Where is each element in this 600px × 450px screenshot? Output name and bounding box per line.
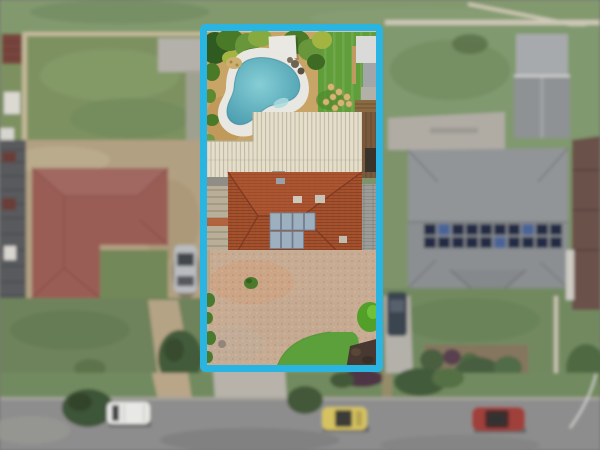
purple-shrub <box>443 349 461 365</box>
yellow-car <box>322 407 369 432</box>
roof-vent <box>315 195 325 203</box>
shed <box>516 34 568 78</box>
garden-shed <box>2 34 22 64</box>
chimney <box>276 178 285 184</box>
red-car <box>472 407 526 433</box>
parked-car-gray <box>172 245 200 299</box>
driveway-crossover <box>213 369 287 400</box>
verge-path <box>152 373 192 400</box>
highlighted-property <box>200 27 383 370</box>
right-neighbor-backyard <box>383 20 600 150</box>
left-neighbor-frontyard <box>0 298 203 386</box>
white-van <box>107 402 151 427</box>
trailer <box>4 92 20 114</box>
aerial-scene <box>0 0 600 450</box>
street-tree <box>287 386 323 414</box>
parked-car-dark <box>387 292 407 336</box>
aerial-photo <box>0 0 600 450</box>
concrete-pad <box>158 38 203 72</box>
carport-roof <box>0 140 26 312</box>
sand-island <box>226 57 242 69</box>
wood-pile <box>355 100 376 112</box>
roof-vent <box>339 236 347 243</box>
roof-vent <box>293 196 302 203</box>
center-shrub <box>244 277 258 289</box>
fence <box>385 20 600 25</box>
courtyard-grass <box>100 250 168 298</box>
fence <box>22 32 203 36</box>
left-neighbor-property <box>0 140 203 312</box>
right-neighbor-house <box>408 148 568 303</box>
gravel-spot <box>218 340 226 348</box>
